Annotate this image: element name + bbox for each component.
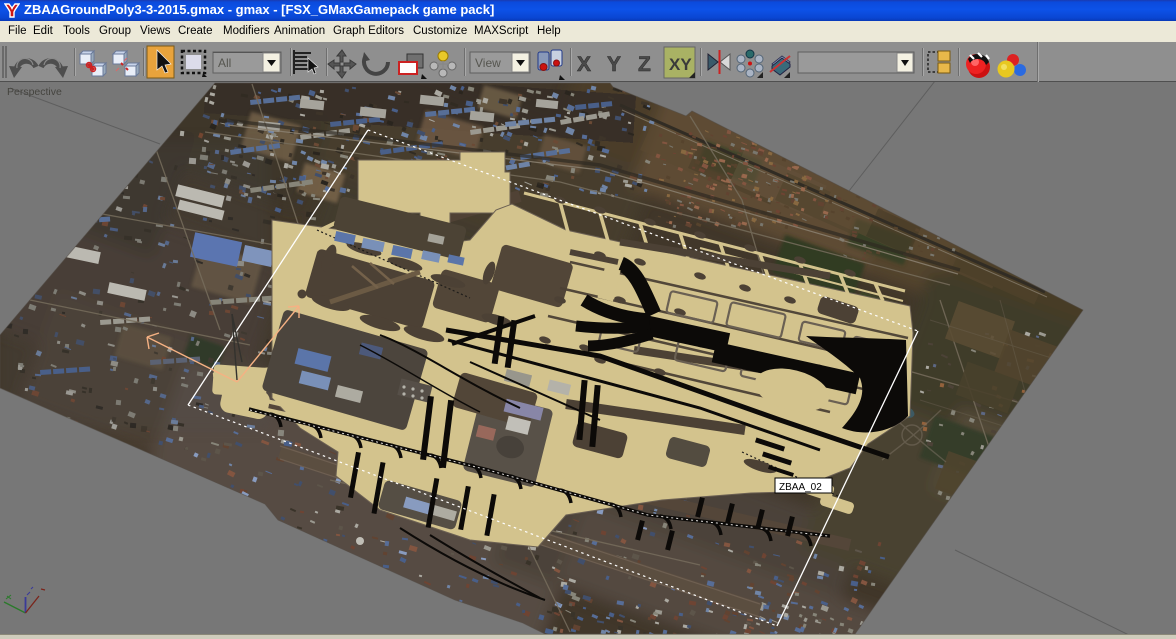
svg-text:Y: Y [607, 53, 621, 76]
svg-text:Perspective: Perspective [7, 86, 62, 98]
svg-text:ZBAA_02: ZBAA_02 [779, 482, 822, 493]
svg-text:Z: Z [638, 53, 651, 76]
svg-text:X: X [577, 53, 591, 76]
svg-text:XY: XY [669, 55, 692, 74]
svg-text:All: All [218, 56, 231, 70]
svg-text:View: View [475, 56, 501, 70]
